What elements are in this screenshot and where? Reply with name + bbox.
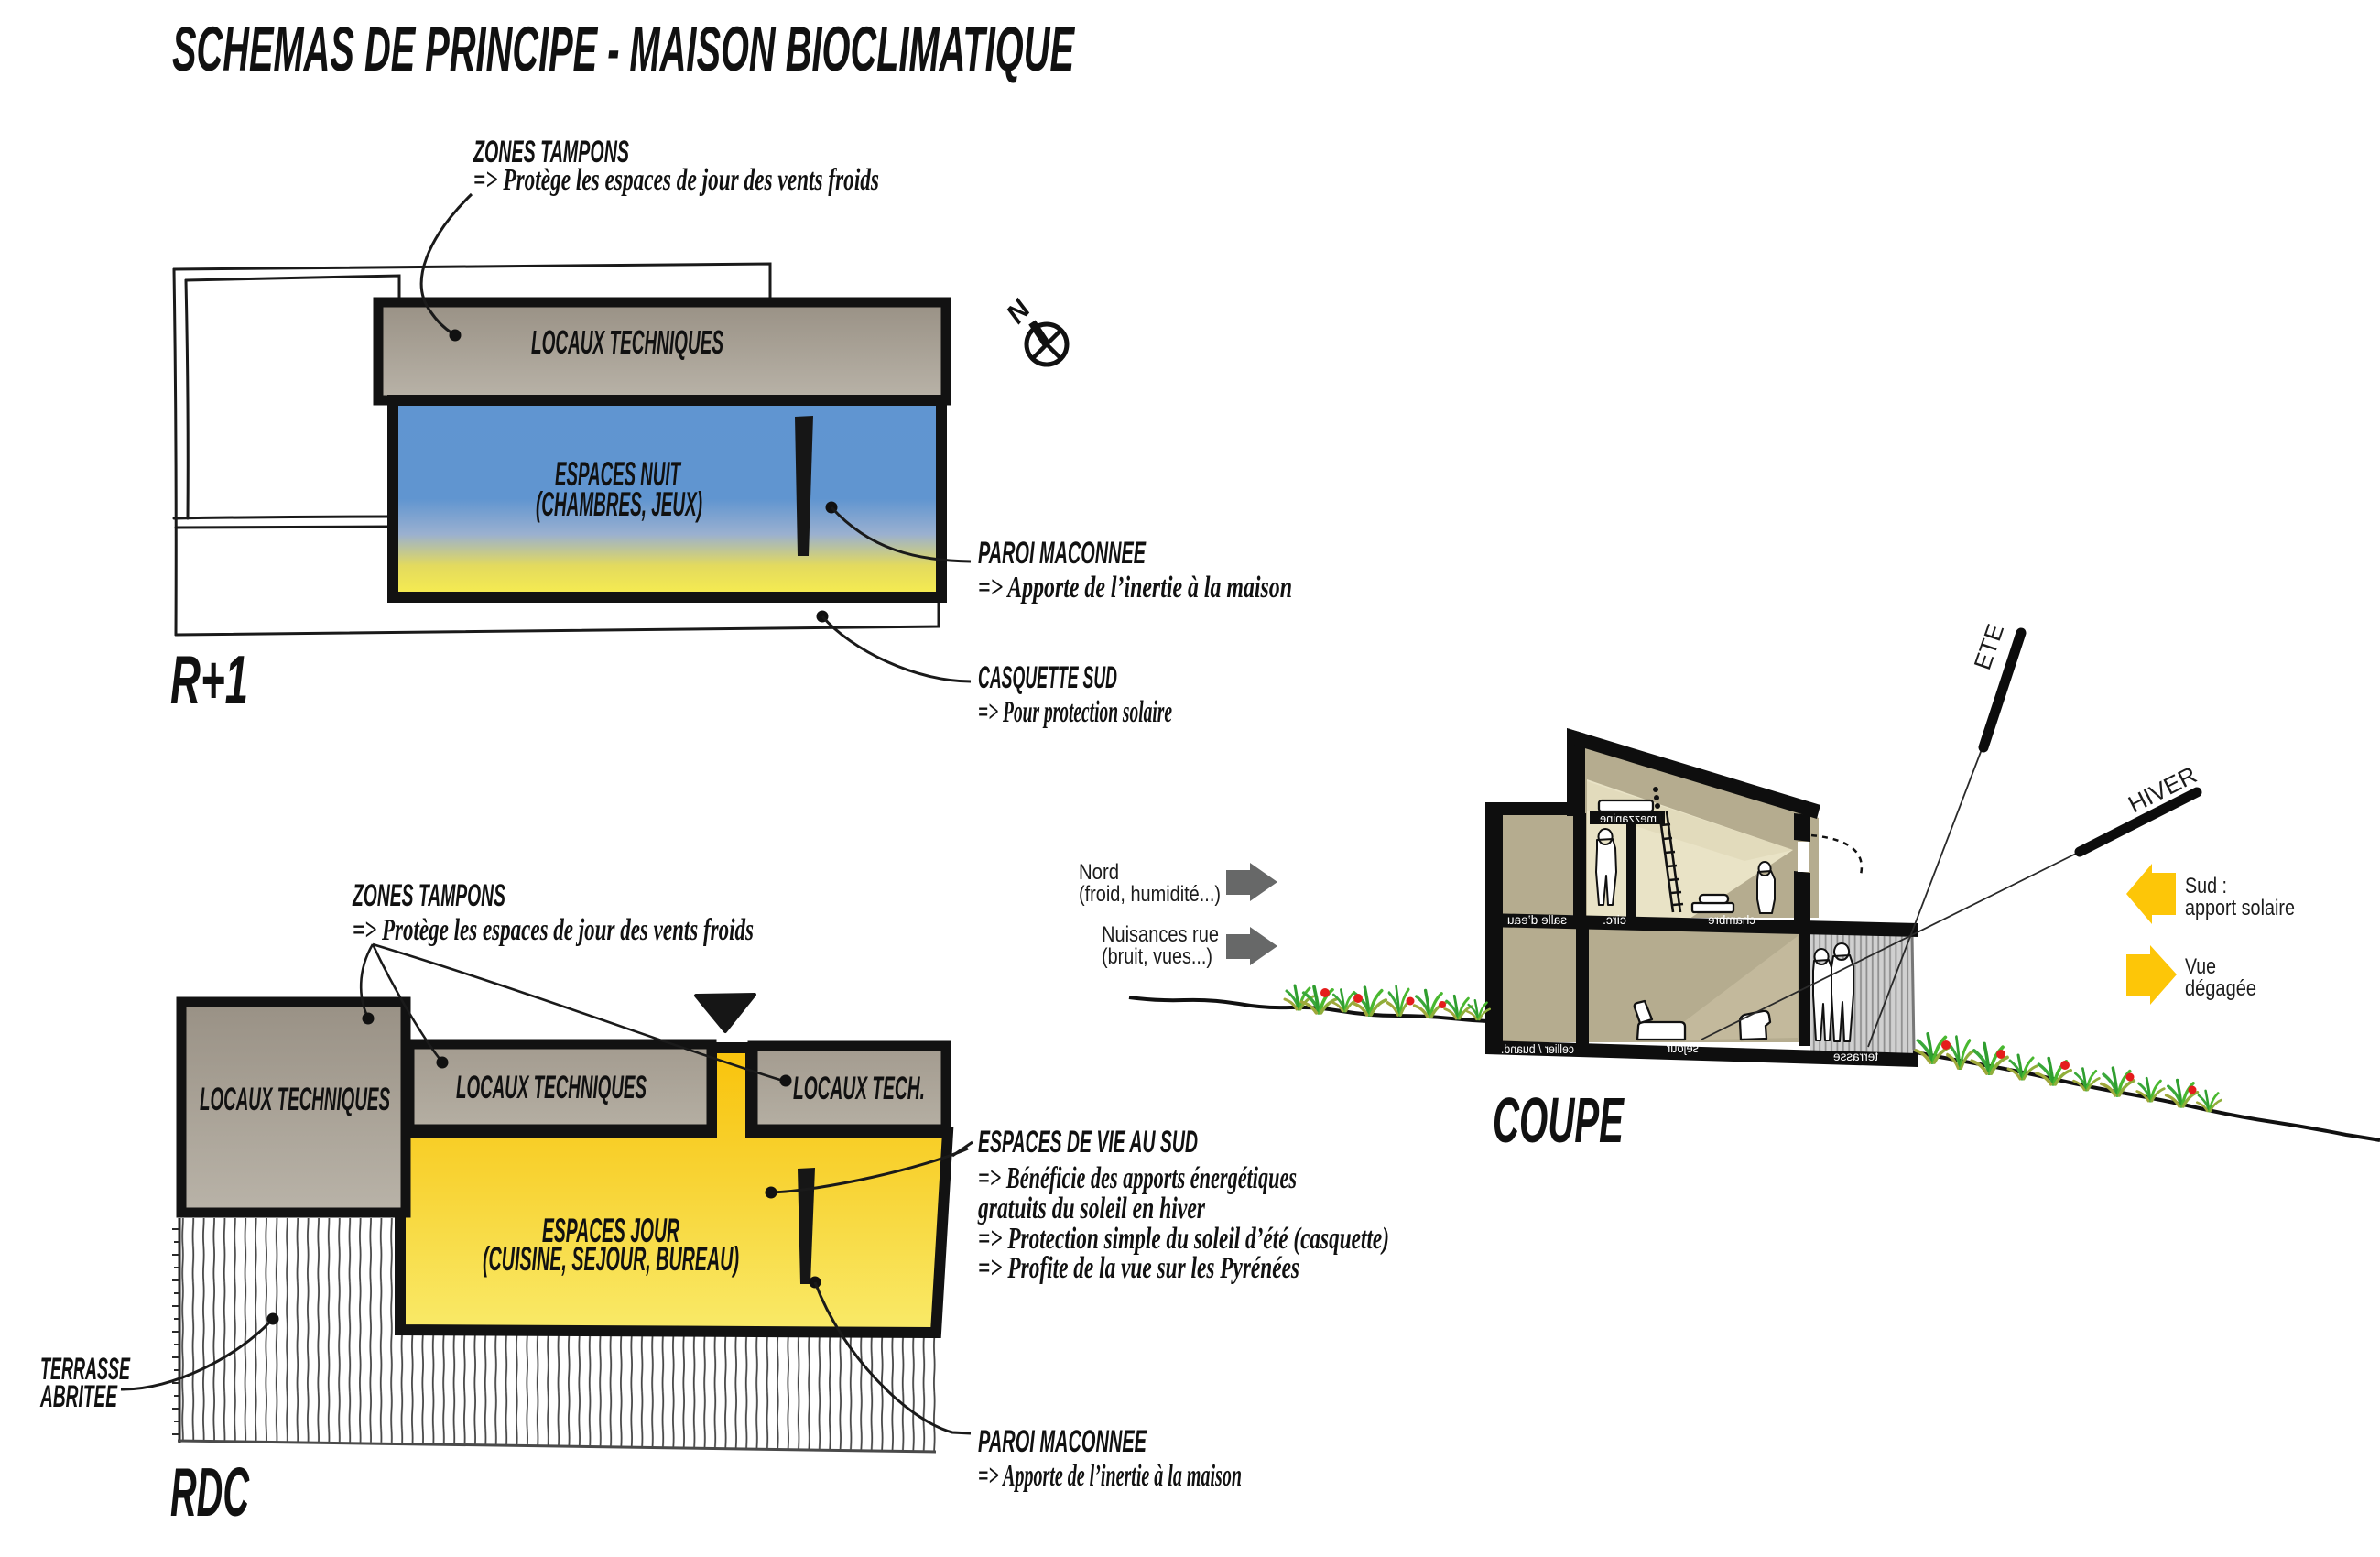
svg-text:mezzanine: mezzanine: [1600, 812, 1657, 825]
svg-text:dégagée: dégagée: [2185, 976, 2256, 1001]
svg-text:LOCAUX TECH.: LOCAUX TECH.: [793, 1071, 925, 1106]
svg-text:=> Protège les espaces de jour: => Protège les espaces de jour des vents…: [353, 913, 754, 947]
svg-text:Nuisances rue: Nuisances rue: [1102, 922, 1219, 947]
svg-text:PAROI MACONNEE: PAROI MACONNEE: [978, 536, 1147, 571]
svg-text:terrasse: terrasse: [1833, 1050, 1878, 1063]
svg-text:séjour: séjour: [1667, 1041, 1699, 1055]
svg-text:LOCAUX TECHNIQUES: LOCAUX TECHNIQUES: [200, 1082, 390, 1117]
svg-text:apport solaire: apport solaire: [2185, 896, 2295, 920]
svg-text:chambre: chambre: [1708, 913, 1755, 927]
svg-text:(CUISINE, SEJOUR, BUREAU): (CUISINE, SEJOUR, BUREAU): [483, 1240, 739, 1278]
svg-text:RDC: RDC: [170, 1454, 250, 1530]
svg-text:ZONES TAMPONS: ZONES TAMPONS: [352, 878, 505, 913]
svg-text:Vue: Vue: [2185, 954, 2216, 979]
svg-text:(CHAMBRES, JEUX): (CHAMBRES, JEUX): [536, 485, 702, 523]
svg-text:=> Pour protection solaire: => Pour protection solaire: [978, 695, 1172, 729]
svg-text:=> Apporte de l’inertie à la m: => Apporte de l’inertie à la maison: [978, 571, 1292, 604]
svg-text:=> Bénéficie des apports énerg: => Bénéficie des apports énergétiques: [978, 1161, 1297, 1195]
svg-text:=> Apporte de l’inertie à la m: => Apporte de l’inertie à la maison: [978, 1459, 1242, 1493]
svg-text:Nord: Nord: [1079, 860, 1119, 885]
svg-text:gratuits du soleil en hiver: gratuits du soleil en hiver: [977, 1192, 1205, 1225]
svg-text:=> Profite de la vue sur les P: => Profite de la vue sur les Pyrénées: [978, 1251, 1299, 1285]
svg-text:cellier / buand.: cellier / buand.: [1501, 1042, 1574, 1056]
svg-text:COUPE: COUPE: [1493, 1084, 1625, 1156]
svg-text:CASQUETTE SUD: CASQUETTE SUD: [978, 660, 1117, 695]
svg-text:Sud :: Sud :: [2185, 874, 2227, 898]
svg-text:=> Protège les espaces de jour: => Protège les espaces de jour des vents…: [473, 163, 879, 197]
svg-text:R+1: R+1: [170, 641, 248, 718]
svg-text:ABRITEE: ABRITEE: [39, 1379, 117, 1414]
svg-text:SCHEMAS DE PRINCIPE - MAISON B: SCHEMAS DE PRINCIPE - MAISON BIOCLIMATIQ…: [172, 14, 1075, 84]
svg-text:(bruit, vues...): (bruit, vues...): [1102, 944, 1212, 969]
svg-text:PAROI MACONNEE: PAROI MACONNEE: [978, 1424, 1147, 1459]
svg-text:LOCAUX TECHNIQUES: LOCAUX TECHNIQUES: [456, 1070, 647, 1105]
svg-text:salle d’eau: salle d’eau: [1507, 913, 1567, 927]
svg-text:(froid, humidité...): (froid, humidité...): [1079, 882, 1221, 907]
svg-text:LOCAUX TECHNIQUES: LOCAUX TECHNIQUES: [531, 323, 723, 361]
svg-text:ESPACES DE VIE AU SUD: ESPACES DE VIE AU SUD: [978, 1125, 1198, 1160]
svg-text:circ.: circ.: [1603, 913, 1626, 927]
